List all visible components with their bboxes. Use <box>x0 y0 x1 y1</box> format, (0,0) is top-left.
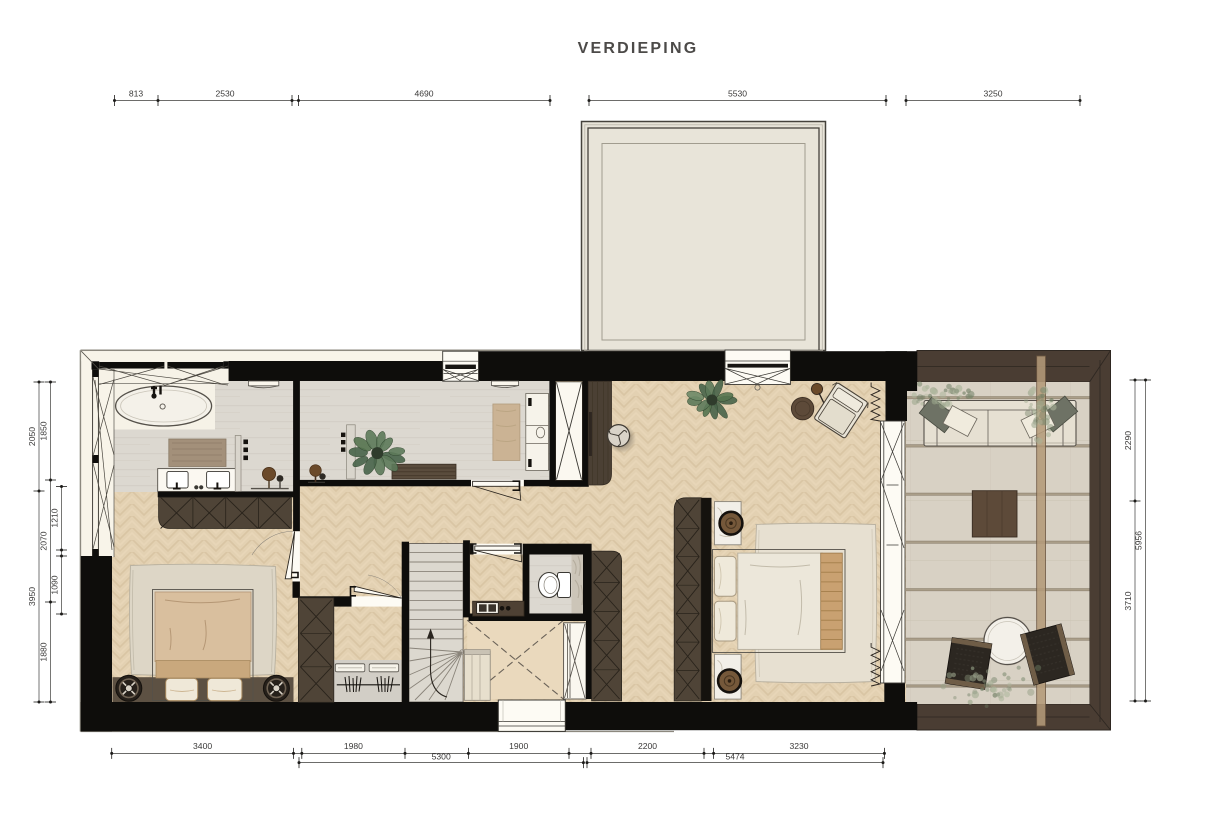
svg-text:2050: 2050 <box>27 427 37 446</box>
svg-text:5956: 5956 <box>1134 531 1144 550</box>
svg-text:5300: 5300 <box>432 751 451 761</box>
svg-text:3250: 3250 <box>983 89 1002 99</box>
svg-text:3710: 3710 <box>1123 591 1133 610</box>
svg-text:3400: 3400 <box>193 741 212 751</box>
svg-text:5474: 5474 <box>725 751 744 761</box>
svg-text:1210: 1210 <box>50 508 60 527</box>
svg-text:VERDIEPING: VERDIEPING <box>578 40 699 57</box>
svg-text:1900: 1900 <box>509 741 528 751</box>
svg-text:813: 813 <box>129 89 144 99</box>
svg-text:2200: 2200 <box>638 741 657 751</box>
svg-text:4690: 4690 <box>414 89 433 99</box>
svg-text:2070: 2070 <box>39 531 49 550</box>
svg-text:1090: 1090 <box>50 575 60 594</box>
svg-text:5530: 5530 <box>728 89 747 99</box>
svg-text:2290: 2290 <box>1123 431 1133 450</box>
svg-text:1880: 1880 <box>39 642 49 661</box>
svg-text:2530: 2530 <box>215 89 234 99</box>
svg-text:1980: 1980 <box>344 741 363 751</box>
svg-text:3230: 3230 <box>789 741 808 751</box>
svg-text:3950: 3950 <box>27 587 37 606</box>
svg-text:1850: 1850 <box>39 421 49 440</box>
